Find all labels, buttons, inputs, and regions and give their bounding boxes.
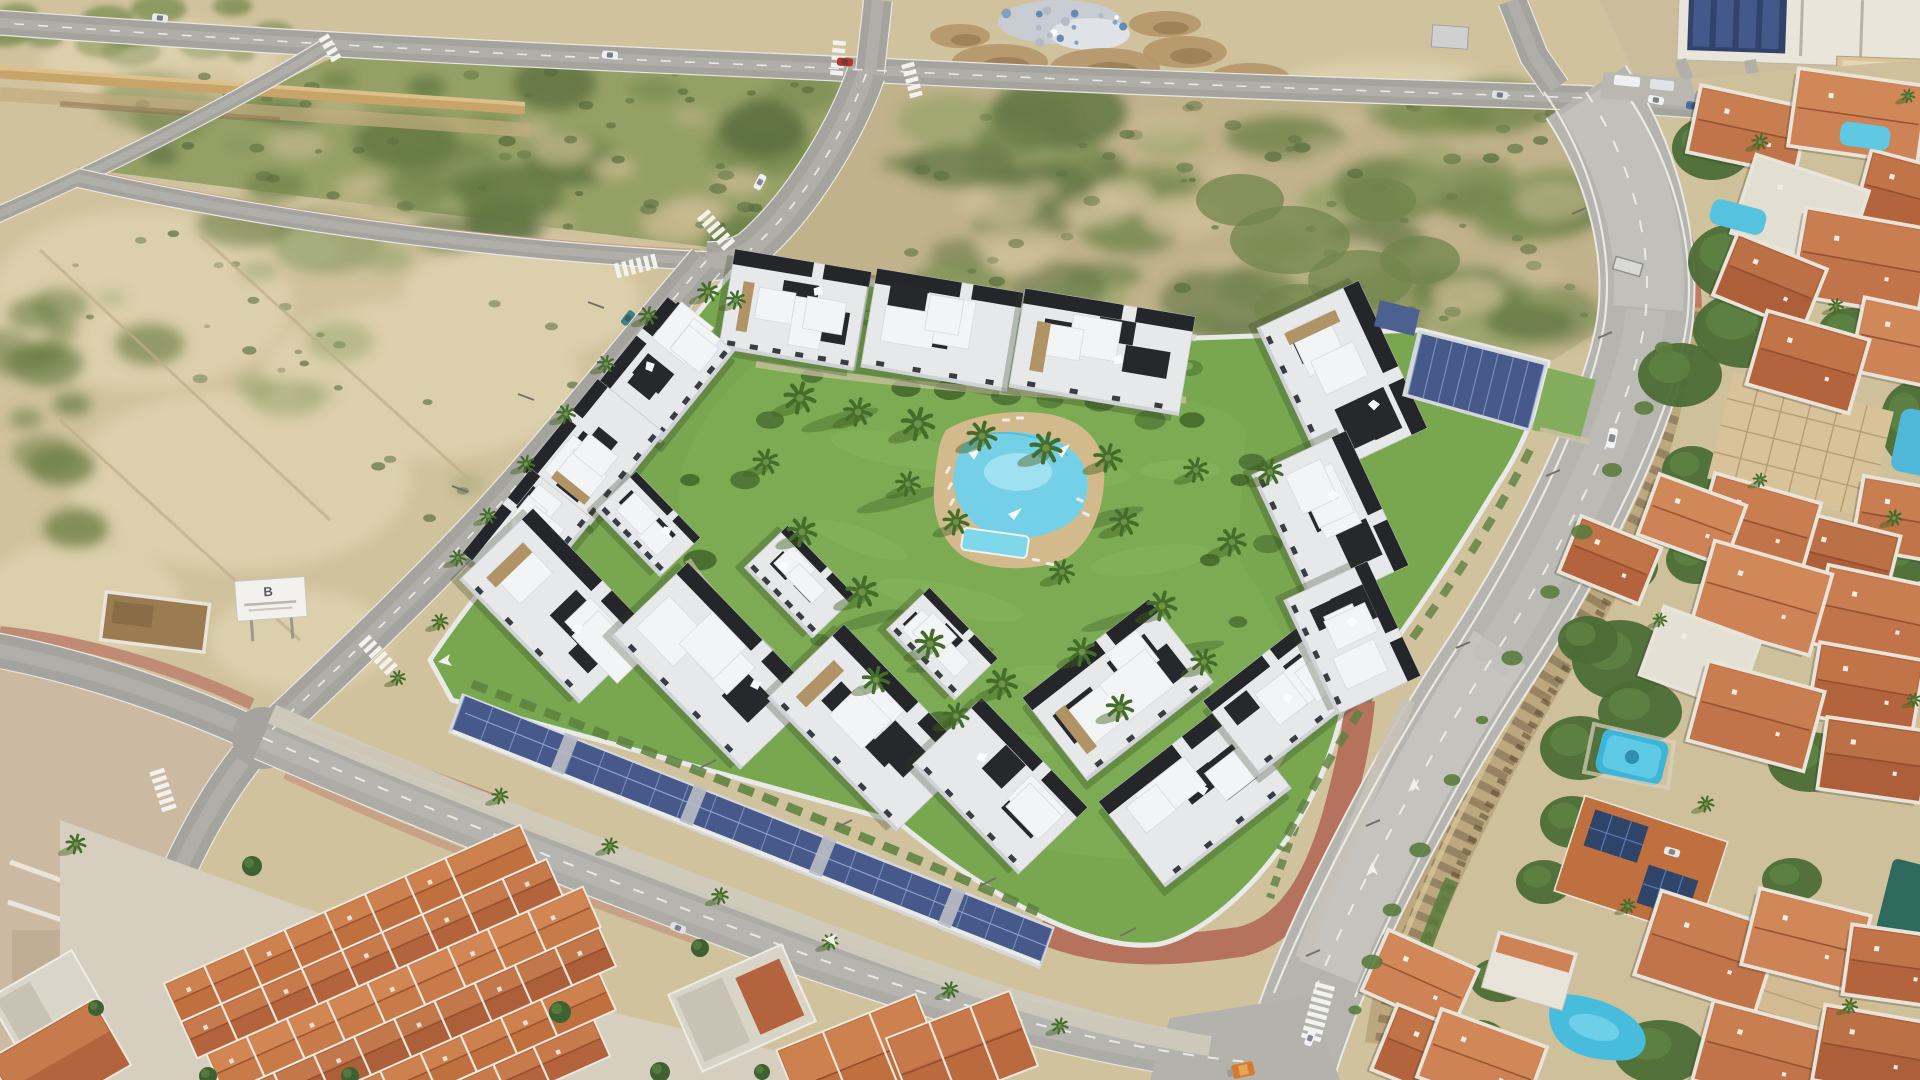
svg-text:B: B (263, 584, 273, 600)
